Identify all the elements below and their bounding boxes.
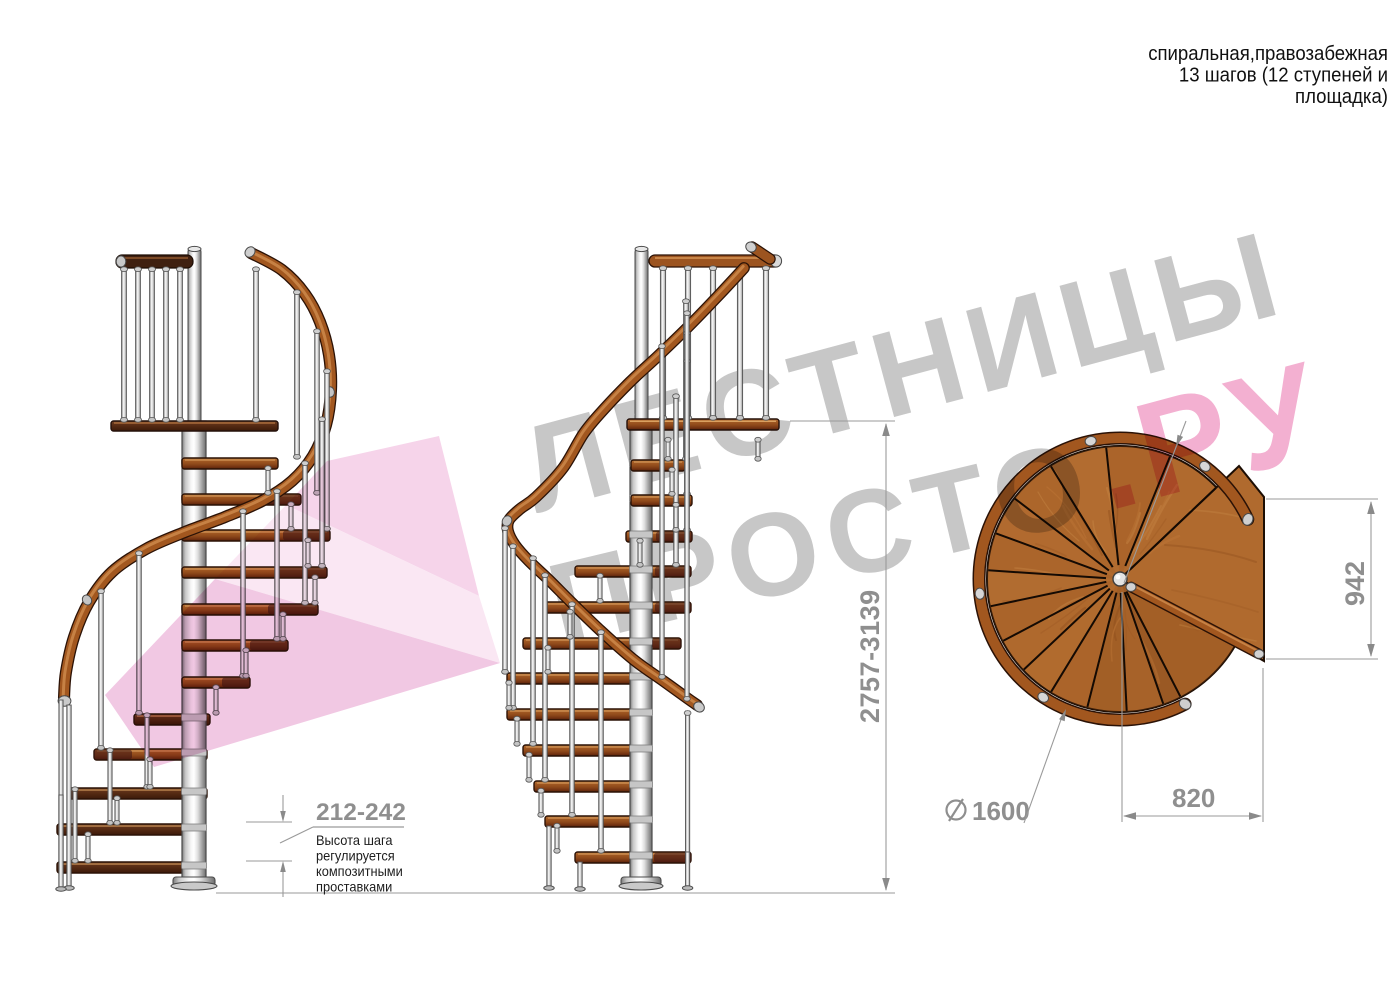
svg-text:212-242: 212-242 (316, 799, 406, 826)
svg-text:Высота шагарегулируетсякомпози: Высота шагарегулируетсякомпозитнымипрост… (316, 833, 403, 895)
svg-text:942: 942 (1340, 561, 1370, 606)
svg-text:820: 820 (1172, 783, 1215, 813)
svg-text:1600: 1600 (972, 796, 1030, 826)
svg-text:2757-3139: 2757-3139 (855, 589, 885, 723)
